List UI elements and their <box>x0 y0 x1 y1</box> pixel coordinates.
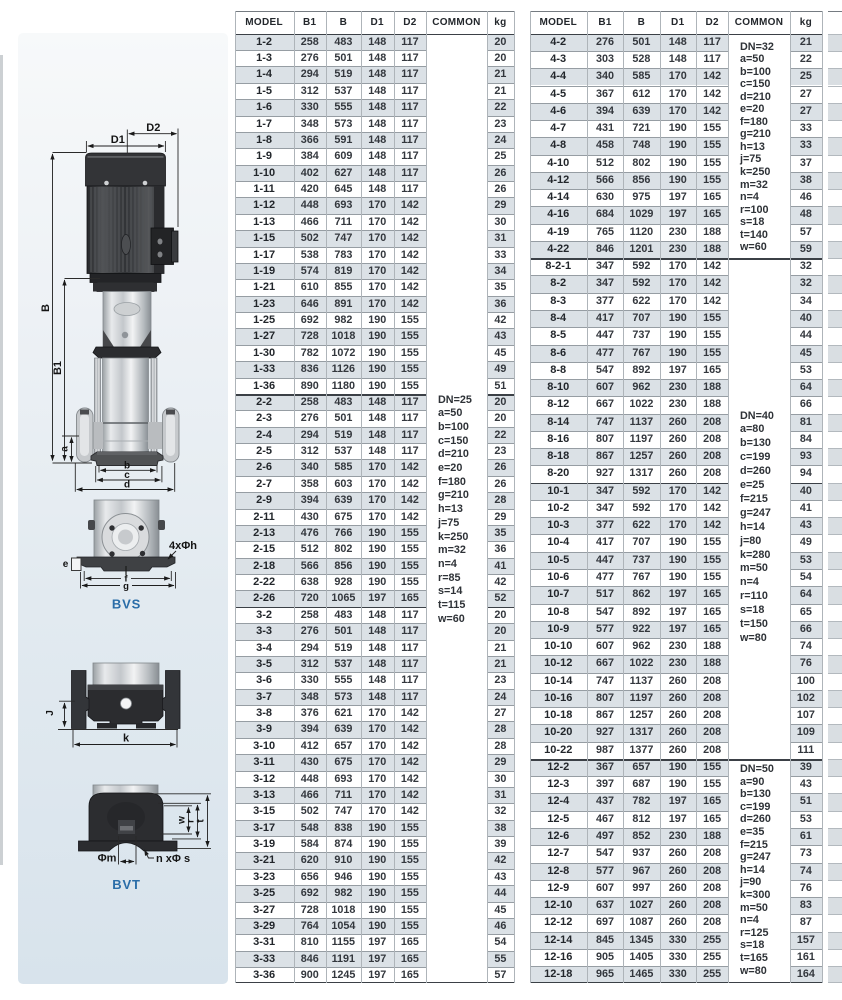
svg-text:4xΦh: 4xΦh <box>169 540 197 552</box>
svg-text:BVT: BVT <box>112 877 140 892</box>
svg-text:d: d <box>124 480 130 491</box>
svg-text:e: e <box>63 559 69 570</box>
svg-text:k: k <box>123 733 130 745</box>
svg-text:BVS: BVS <box>112 597 141 612</box>
svg-text:a: a <box>60 446 71 452</box>
svg-text:B: B <box>40 304 52 312</box>
svg-text:B1: B1 <box>52 361 64 375</box>
svg-text:J: J <box>45 710 56 716</box>
svg-text:D1: D1 <box>111 134 125 146</box>
svg-text:D2: D2 <box>146 122 160 134</box>
svg-text:n xΦ s: n xΦ s <box>156 853 190 865</box>
svg-text:Φm: Φm <box>98 853 117 865</box>
svg-text:g: g <box>123 581 129 592</box>
